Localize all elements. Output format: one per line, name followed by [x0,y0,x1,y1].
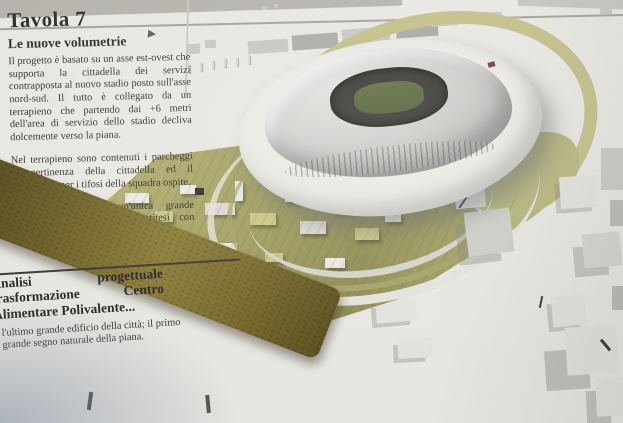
context-building [564,324,619,376]
context-building [601,148,623,190]
context-building [551,294,588,327]
context-building [612,286,623,310]
context-building [610,200,623,226]
context-building [397,337,432,359]
model-antenna [87,392,93,410]
context-building [463,207,514,256]
board-subtitle: Le nuove volumetrie [8,32,190,52]
context-building [274,4,278,8]
context-building [582,231,623,268]
context-building [205,40,216,49]
context-building [262,6,267,10]
model-antenna [205,395,211,413]
arrow-icon [148,30,157,39]
context-building [248,39,289,55]
architectural-model-photo: Tavola 7 Le nuove volumetrie Il progetto… [0,0,623,423]
paragraph-1: Il progetto è basato su un asse est-oves… [8,52,192,145]
model-antenna [539,296,543,308]
board-title: Tavola 7 [7,4,190,33]
model-pole [248,55,250,64]
model-pole [212,60,214,69]
model-pole [224,58,226,67]
caption-heading: Analisi progettuale trasformazione Centr… [0,266,165,323]
model-pole [236,57,238,66]
caption-note: l'ultimo grande edificio della città; il… [1,316,194,353]
context-building [559,175,599,210]
context-building [600,6,612,14]
model-courtyard [195,188,204,195]
model-pole [200,62,202,71]
context-building [595,377,623,416]
